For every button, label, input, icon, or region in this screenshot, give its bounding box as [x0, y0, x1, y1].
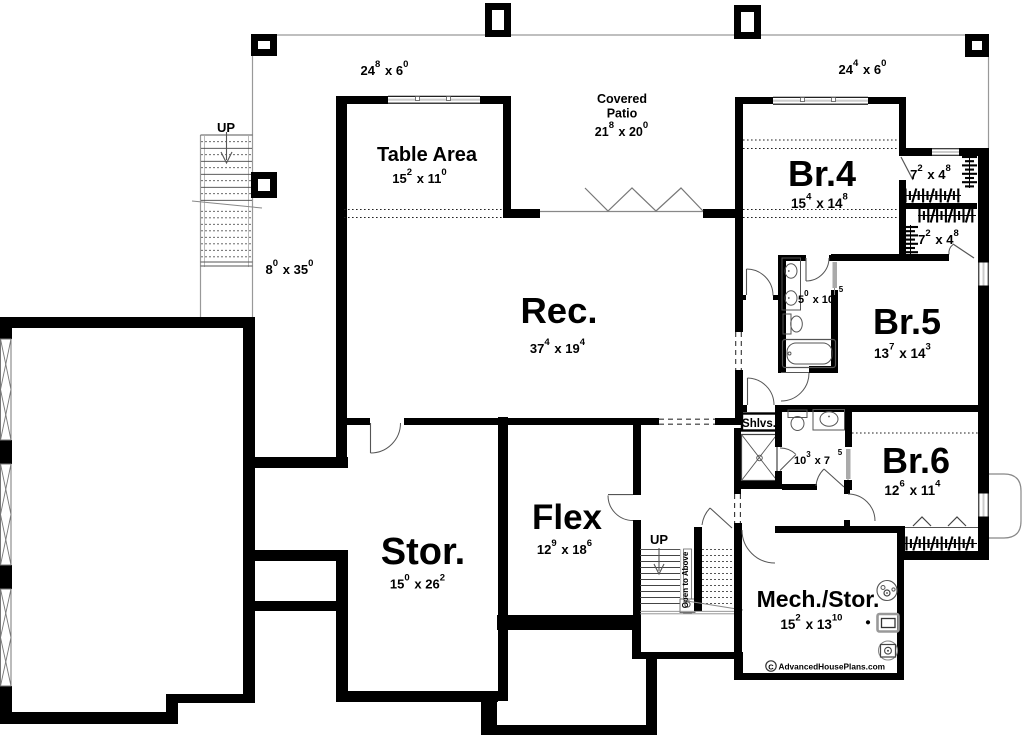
svg-text:Patio: Patio	[607, 107, 638, 121]
svg-text:Br.4: Br.4	[788, 153, 856, 194]
svg-text:5: 5	[839, 285, 844, 294]
svg-text:Open to Above: Open to Above	[681, 551, 690, 608]
svg-text:Covered: Covered	[597, 92, 647, 106]
svg-text:UP: UP	[650, 532, 668, 547]
svg-text:C: C	[768, 662, 774, 671]
svg-text:Rec.: Rec.	[520, 290, 597, 331]
svg-text:AdvancedHousePlans.com: AdvancedHousePlans.com	[779, 662, 886, 672]
svg-text:Flex: Flex	[532, 498, 603, 537]
svg-text:Br.5: Br.5	[873, 301, 941, 342]
svg-text:Shlvs.: Shlvs.	[742, 418, 776, 430]
svg-text:Table Area: Table Area	[377, 144, 478, 166]
svg-text:Stor.: Stor.	[381, 531, 465, 573]
svg-text:Mech./Stor.: Mech./Stor.	[757, 586, 880, 612]
svg-text:Br.6: Br.6	[882, 440, 950, 481]
svg-text:5: 5	[838, 448, 843, 457]
